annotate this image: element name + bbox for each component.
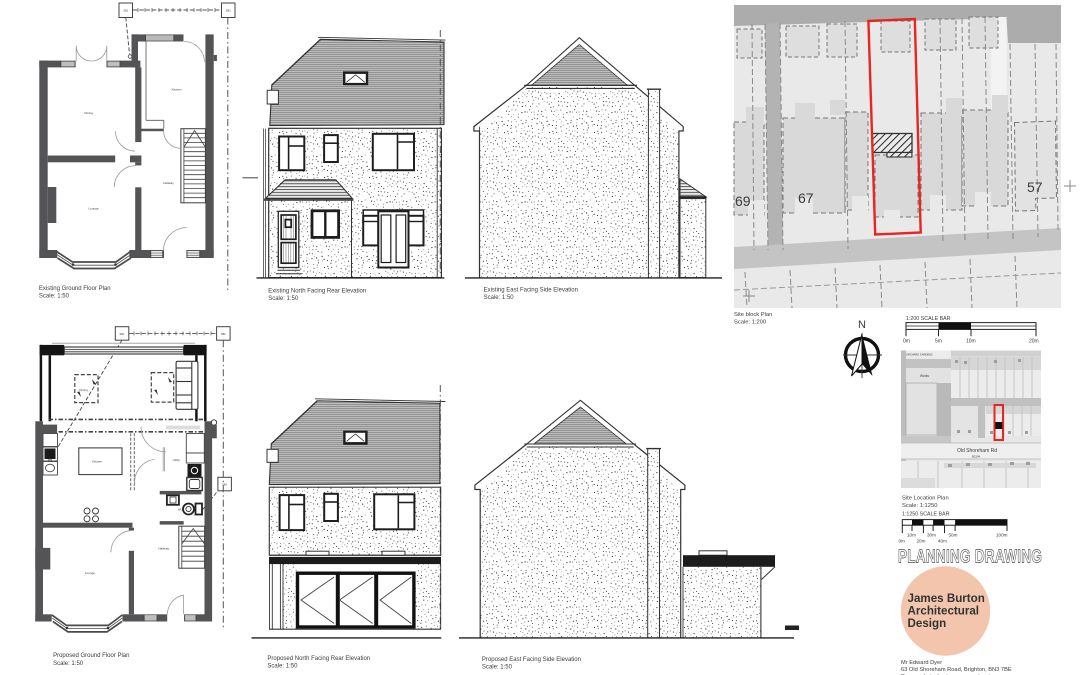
svg-text:Existing Ground Floor Plan: Existing Ground Floor Plan — [39, 286, 111, 292]
svg-text:20m: 20m — [1029, 339, 1039, 345]
svg-text:69: 69 — [735, 193, 751, 209]
svg-text:Old Shoreham Rd: Old Shoreham Rd — [957, 448, 997, 454]
svg-text:Site Location Plan: Site Location Plan — [902, 496, 949, 502]
svg-text:SB1: SB1 — [221, 332, 226, 336]
svg-text:50m: 50m — [949, 533, 958, 538]
svg-text:Lounge: Lounge — [85, 571, 95, 575]
svg-text:Works: Works — [920, 374, 929, 378]
svg-text:Scale: 1:200: Scale: 1:200 — [734, 320, 766, 326]
svg-text:Design: Design — [908, 617, 947, 630]
svg-text:Utility: Utility — [173, 458, 181, 462]
svg-text:Proposed East Facing Side Elev: Proposed East Facing Side Elevation — [482, 657, 581, 663]
svg-text:Hallway: Hallway — [159, 547, 170, 551]
svg-text:30m: 30m — [927, 533, 936, 538]
svg-text:57: 57 — [1027, 179, 1043, 195]
svg-text:Existing East Facing Side Elev: Existing East Facing Side Elevation — [484, 288, 578, 294]
svg-text:40m: 40m — [938, 539, 947, 544]
svg-text:100m: 100m — [996, 533, 1008, 538]
svg-text:SB1: SB1 — [120, 332, 125, 336]
svg-text:10m: 10m — [907, 533, 916, 538]
svg-text:Scale: 1:50: Scale: 1:50 — [53, 661, 84, 667]
svg-text:0m: 0m — [903, 339, 910, 345]
svg-text:Scale: 1:50: Scale: 1:50 — [268, 296, 299, 302]
svg-text:Scale: 1:50: Scale: 1:50 — [484, 295, 515, 301]
svg-text:Proposed North Facing Rear Ele: Proposed North Facing Rear Elevation — [267, 656, 370, 662]
svg-text:67: 67 — [798, 190, 814, 206]
svg-text:James Burton: James Burton — [908, 592, 985, 605]
svg-text:10m: 10m — [966, 339, 976, 345]
svg-text:20m: 20m — [917, 539, 926, 544]
svg-text:Kitchen: Kitchen — [172, 88, 182, 92]
svg-text:Scale: 1:50: Scale: 1:50 — [482, 665, 513, 671]
svg-text:Kitchen: Kitchen — [92, 460, 102, 464]
svg-text:N: N — [858, 319, 866, 331]
svg-text:ORCHARD GARDENS: ORCHARD GARDENS — [906, 353, 933, 357]
svg-text:Hallway: Hallway — [163, 181, 174, 185]
svg-text:SB1: SB1 — [226, 9, 231, 13]
svg-text:Scale: 1:50: Scale: 1:50 — [267, 664, 298, 670]
svg-text:Proposed Ground Floor Plan: Proposed Ground Floor Plan — [53, 653, 129, 659]
svg-text:Mr Edward Dyer: Mr Edward Dyer — [901, 660, 942, 666]
svg-text:1:1250 SCALE BAR: 1:1250 SCALE BAR — [902, 512, 950, 518]
svg-text:5m: 5m — [935, 339, 942, 345]
svg-text:Scale: 1:50: Scale: 1:50 — [39, 294, 70, 300]
svg-text:WC: WC — [178, 508, 182, 512]
svg-text:Existing North Facing Rear Ele: Existing North Facing Rear Elevation — [268, 289, 366, 295]
svg-text:0m: 0m — [899, 539, 906, 544]
svg-text:Architectural: Architectural — [908, 605, 980, 618]
svg-text:1:200 SCALE BAR: 1:200 SCALE BAR — [906, 316, 951, 322]
svg-text:B2194: B2194 — [972, 455, 981, 459]
svg-text:Dining: Dining — [85, 111, 94, 115]
svg-text:Scale: 1:1250: Scale: 1:1250 — [902, 503, 937, 509]
svg-text:Dining: Dining — [79, 388, 88, 392]
svg-text:PLANNING DRAWING: PLANNING DRAWING — [898, 547, 1042, 568]
svg-text:Site block Plan: Site block Plan — [734, 312, 772, 318]
svg-text:Lounge: Lounge — [89, 206, 99, 210]
svg-text:63 Old Shoreham Road, Brighton: 63 Old Shoreham Road, Brighton, BN3 7BE — [901, 667, 1012, 673]
svg-text:SB1: SB1 — [123, 9, 128, 13]
